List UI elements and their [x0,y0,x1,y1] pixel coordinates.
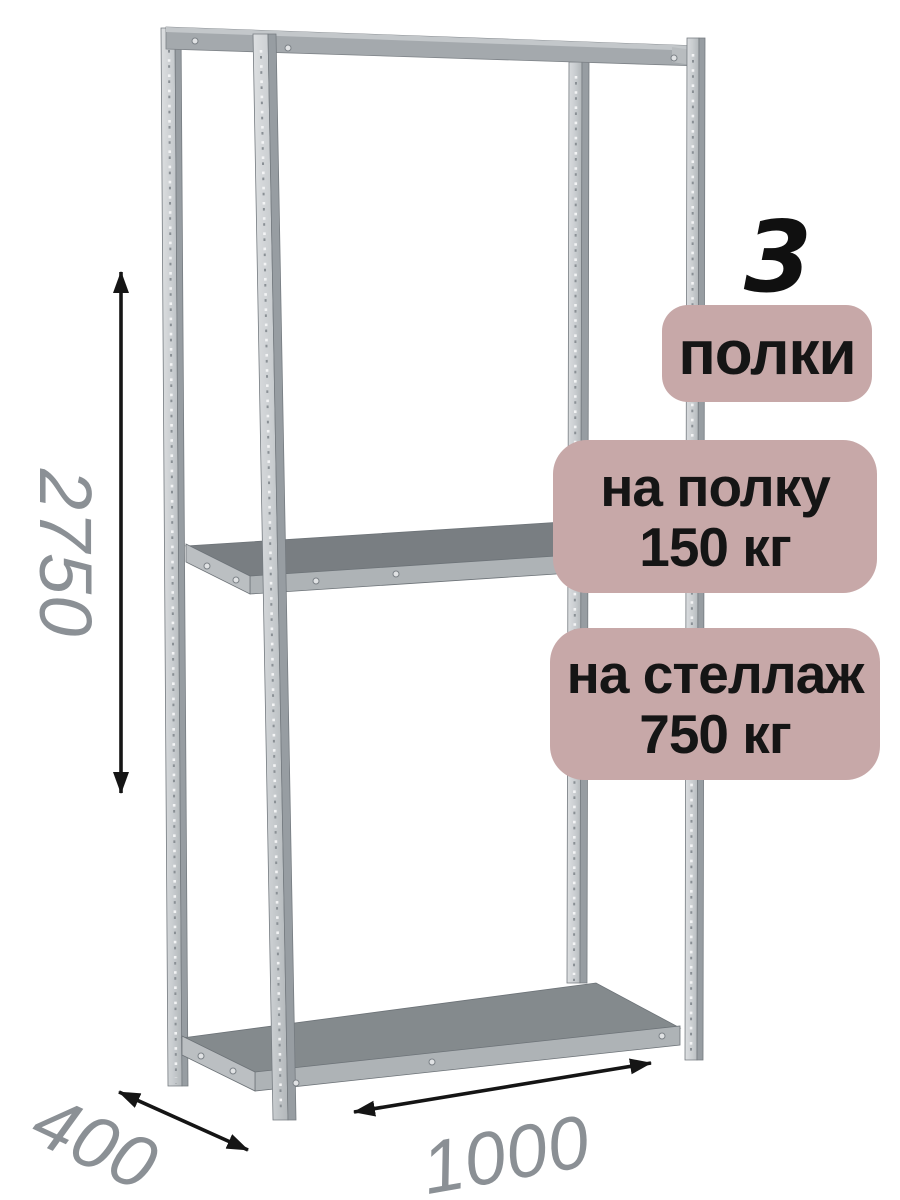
height-dimension-label: 2750 [25,403,105,703]
product-image: 2750 400 1000 3 полки на полку 150 кг на… [0,0,900,1200]
per-rack-load-line2: 750 кг [639,704,790,764]
per-rack-load-badge: на стеллаж 750 кг [550,628,880,780]
shelf-count-value: 3 [722,208,834,308]
per-rack-load-line1: на стеллаж [567,644,864,704]
shelf-count-unit-label: полки [678,318,855,389]
shelf-count-badge: полки [662,305,872,402]
per-shelf-load-line1: на полку [600,457,830,517]
back-left-post [161,28,188,1086]
top-shelf [166,27,700,66]
rack-illustration [0,0,900,1200]
per-shelf-load-line2: 150 кг [639,517,790,577]
bottom-shelf [182,983,680,1091]
per-shelf-load-badge: на полку 150 кг [553,440,877,593]
